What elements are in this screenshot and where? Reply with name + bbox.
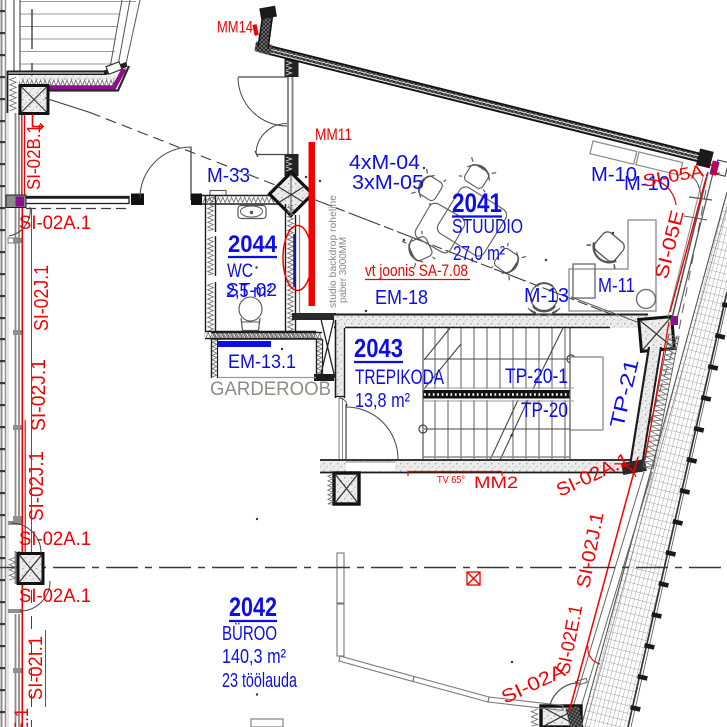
svg-text:GARDEROOB: GARDEROOB <box>210 379 331 400</box>
svg-text:140,3 m²: 140,3 m² <box>222 646 286 668</box>
svg-text:SI-02J.1: SI-02J.1 <box>28 359 50 431</box>
svg-text:STUUDIO: STUUDIO <box>452 215 523 238</box>
svg-text:MM14: MM14 <box>217 18 253 37</box>
svg-text:13,8 m²: 13,8 m² <box>355 390 410 412</box>
svg-text:SI-02J.1: SI-02J.1 <box>31 265 53 331</box>
svg-text:M-11: M-11 <box>598 275 635 297</box>
svg-text:ST-02: ST-02 <box>226 279 277 300</box>
svg-text:SI-02J.1: SI-02J.1 <box>26 451 48 521</box>
svg-text:4xM-04: 4xM-04 <box>349 152 420 174</box>
svg-text:M-33: M-33 <box>207 165 250 187</box>
svg-text:2042: 2042 <box>229 592 277 622</box>
svg-text:SI-02A.1: SI-02A.1 <box>19 586 91 607</box>
svg-text:TP-20: TP-20 <box>521 399 568 422</box>
svg-text:TP-20-1: TP-20-1 <box>505 365 568 388</box>
svg-text:3xM-05: 3xM-05 <box>352 172 424 194</box>
svg-text:TV 65°: TV 65° <box>437 474 465 486</box>
svg-text:SI-02A.1: SI-02A.1 <box>19 213 91 234</box>
svg-text:TREPIKODA: TREPIKODA <box>355 366 444 389</box>
svg-text:BÜROO: BÜROO <box>222 623 277 645</box>
svg-text:SI-02E.1: SI-02E.1 <box>12 708 33 727</box>
svg-text:23 töölauda: 23 töölauda <box>222 670 298 692</box>
svg-text:paber 3000MM: paber 3000MM <box>337 237 349 303</box>
svg-text:SI-02A.1: SI-02A.1 <box>19 529 91 550</box>
svg-text:2043: 2043 <box>354 333 403 363</box>
svg-text:EM-13.1: EM-13.1 <box>228 352 296 373</box>
svg-text:2041: 2041 <box>452 188 502 218</box>
svg-text:2044: 2044 <box>228 231 277 258</box>
svg-text:MM2: MM2 <box>474 474 518 492</box>
svg-text:vt joonis SA-7.08: vt joonis SA-7.08 <box>365 261 468 280</box>
svg-text:SI-02I.1: SI-02I.1 <box>26 636 47 700</box>
svg-text:MM11: MM11 <box>315 126 352 144</box>
svg-text:M-13: M-13 <box>524 285 569 307</box>
svg-text:EM-18: EM-18 <box>375 287 428 309</box>
svg-text:SI-02B.1: SI-02B.1 <box>24 124 44 190</box>
